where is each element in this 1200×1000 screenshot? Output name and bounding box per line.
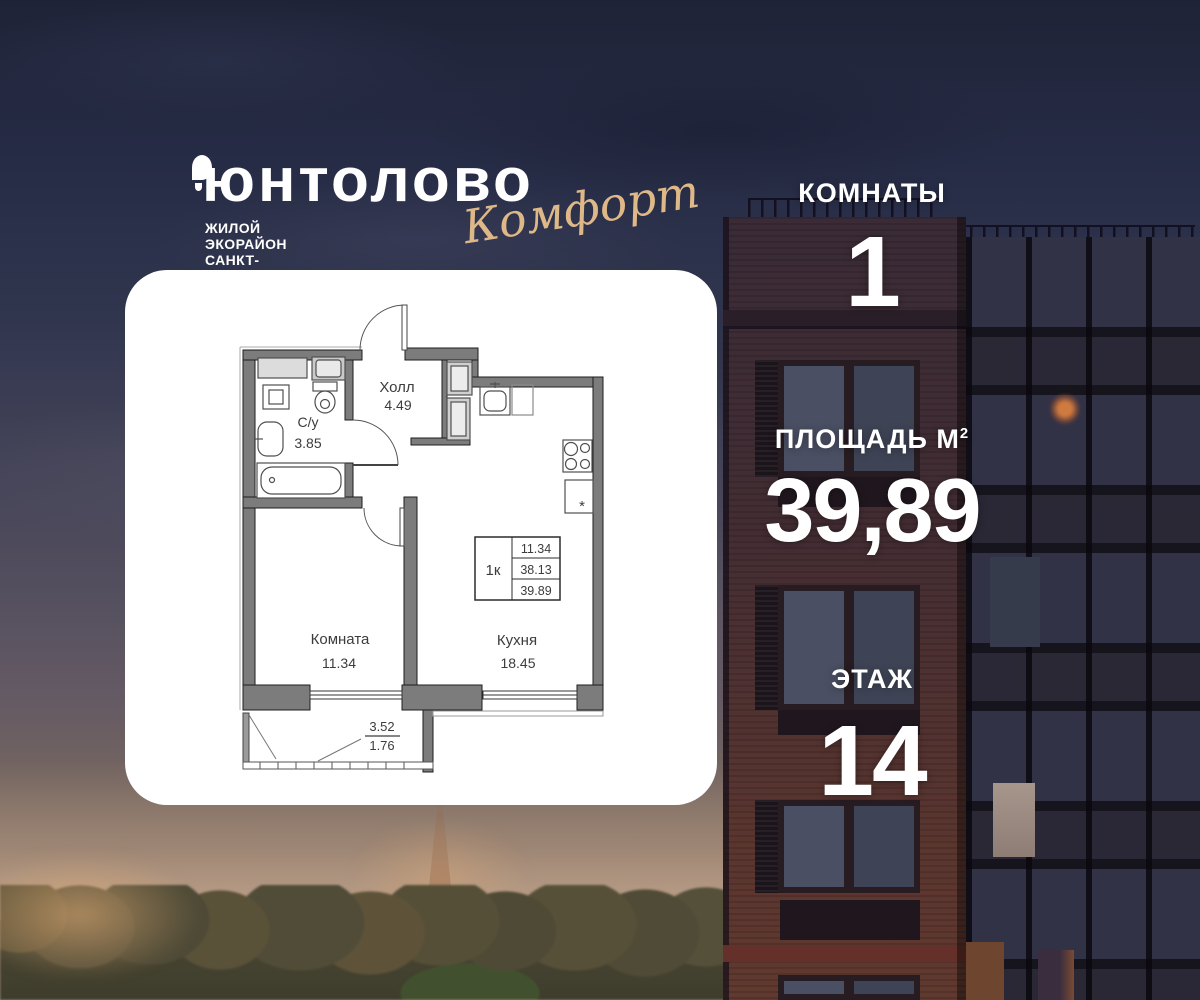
window [778, 975, 920, 1000]
balcony [243, 713, 433, 769]
lit-window [993, 783, 1035, 857]
leaf-icon [195, 183, 202, 191]
hall-label: Холл [379, 379, 414, 396]
balcony-area-reduced: 1.76 [369, 738, 394, 753]
entrance-door [360, 305, 407, 350]
washing-machine-icon [312, 357, 345, 380]
unit-type: 1к [486, 562, 501, 579]
bathroom-door [353, 420, 398, 465]
window [778, 360, 920, 477]
kitchen-label: Кухня [497, 632, 537, 649]
brick-accent [755, 360, 779, 477]
red-band [723, 945, 966, 962]
unit-living-area: 38.13 [520, 563, 551, 577]
bathroom-label: С/у [298, 414, 319, 430]
area-value: 39,89 [752, 466, 992, 556]
lit-window [966, 942, 1004, 1000]
hall-area: 4.49 [384, 397, 411, 413]
floorplan-card[interactable]: * 1к 11.34 38.13 39.89 Холл 4.49 С/у 3.8… [125, 270, 717, 805]
freezer-star: * [579, 498, 585, 515]
washbasin-icon [254, 422, 283, 456]
area-label: ПЛОЩАДЬ М2 [752, 426, 992, 453]
wardrobe-icon [447, 362, 472, 440]
unit-room-area: 11.34 [521, 542, 551, 556]
floor-label: ЭТАЖ [752, 666, 992, 693]
sink-icon [263, 385, 289, 409]
room-label: Комната [311, 631, 370, 648]
kitchen-sink-icon [480, 382, 510, 415]
brick-accent [755, 800, 779, 893]
floor-value: 14 [752, 711, 992, 811]
counter-icon [512, 385, 533, 415]
unit-total-area: 39.89 [520, 584, 551, 598]
room-door [364, 508, 404, 546]
facade-edge [957, 217, 966, 1000]
brick-accent [780, 900, 920, 940]
stove-icon [563, 440, 592, 472]
area-label-sup: 2 [960, 426, 969, 442]
bathroom-area: 3.85 [294, 435, 321, 451]
facade-edge [723, 217, 729, 1000]
sunset-glow [0, 850, 200, 980]
lit-window [1050, 393, 1080, 425]
window [990, 557, 1040, 647]
bathtub-icon [257, 463, 345, 498]
brick-tower-facade [723, 217, 966, 1000]
toilet-icon [313, 382, 337, 413]
area-label-text: ПЛОЩАДЬ М [775, 424, 960, 454]
lit-window [1038, 950, 1074, 1000]
balcony-area-full: 3.52 [369, 719, 394, 734]
room-area: 11.34 [322, 655, 356, 671]
unit-info-table: 1к 11.34 38.13 39.89 [475, 537, 560, 600]
listing-banner: юнтолово ЖИЛОЙ ЭКОРАЙОН САНКТ-ПЕТЕРБУРГА… [0, 0, 1200, 1000]
shelf-icon [258, 358, 307, 378]
rooms-label: КОМНАТЫ [752, 180, 992, 207]
rooms-value: 1 [752, 222, 992, 322]
glass-facade [966, 237, 1200, 1000]
floorplan-drawing: * 1к 11.34 38.13 39.89 Холл 4.49 С/у 3.8… [230, 298, 610, 783]
kitchen-area: 18.45 [500, 655, 535, 671]
